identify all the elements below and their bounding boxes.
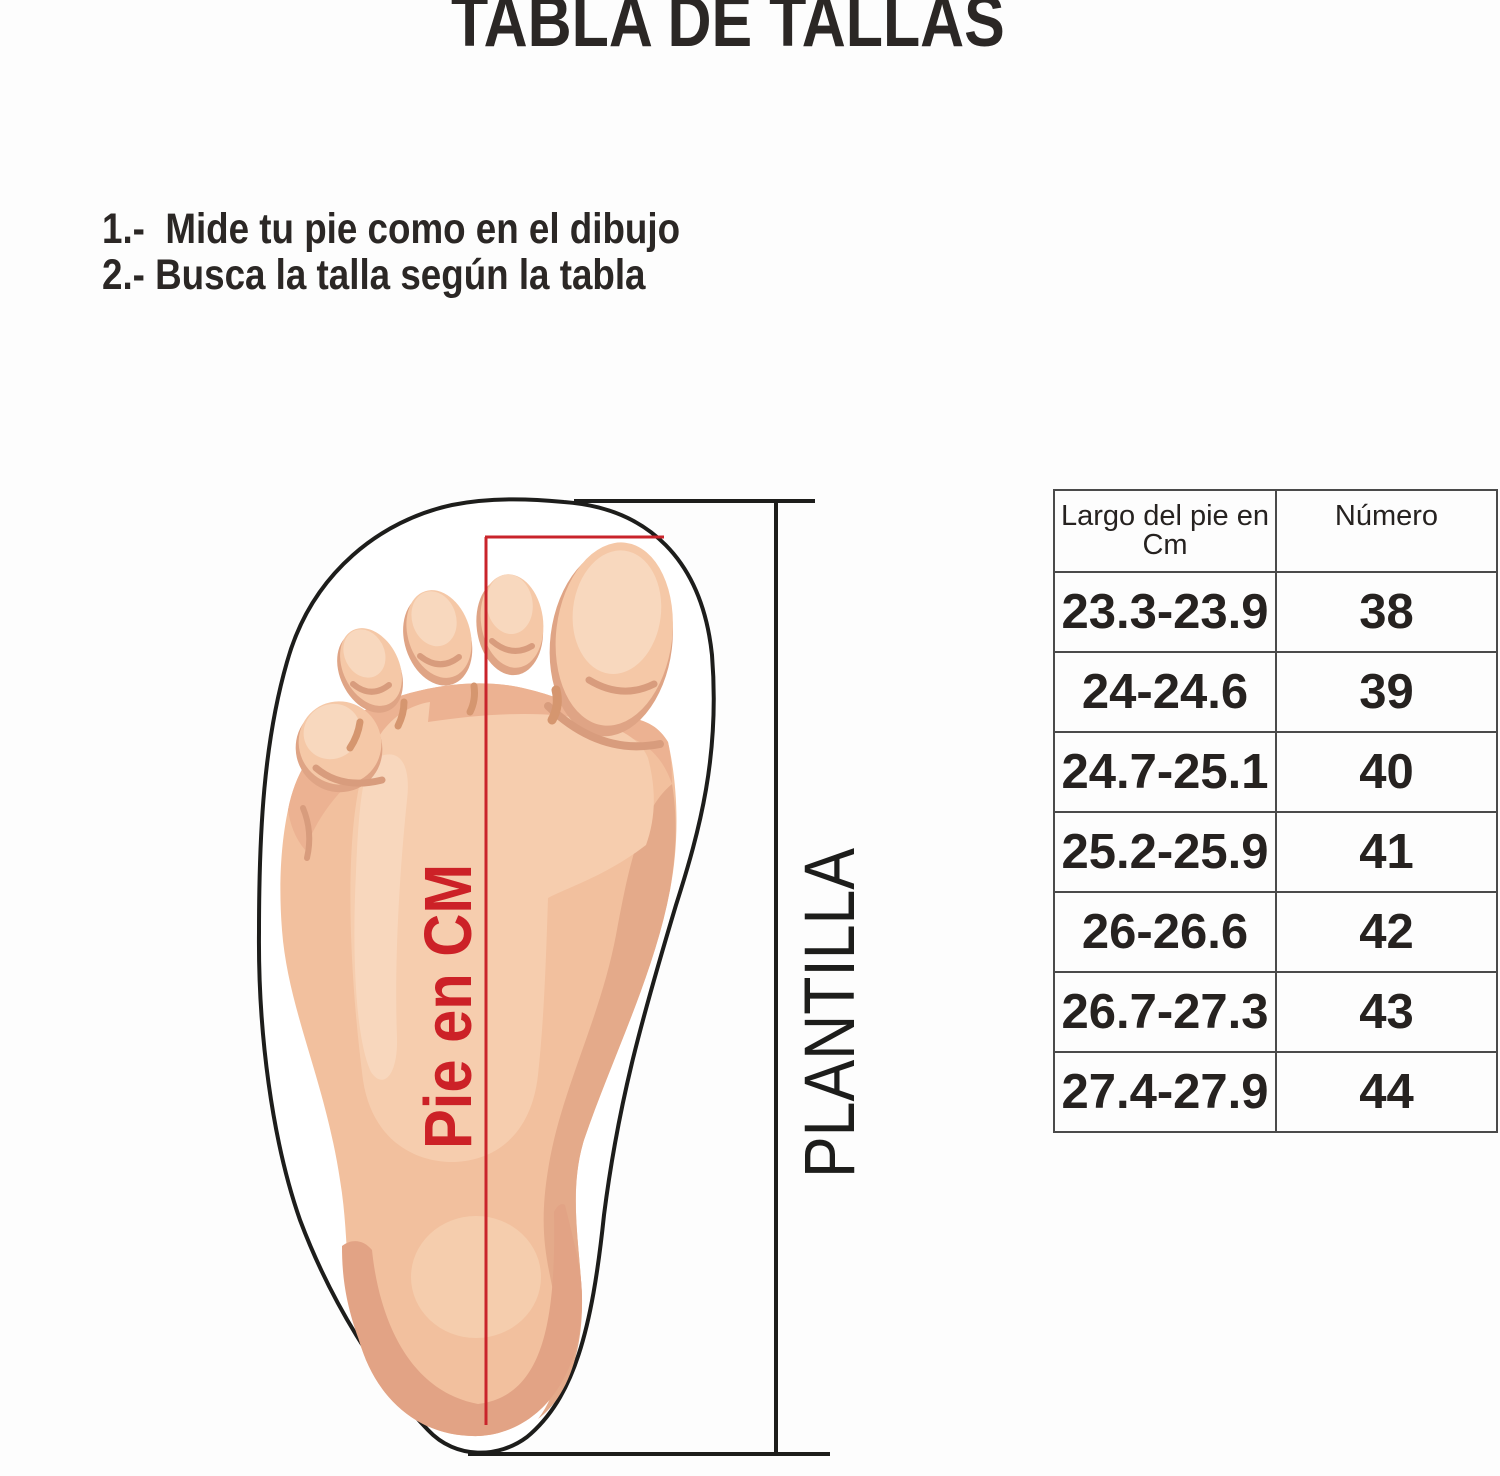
svg-text:Pie en CM: Pie en CM [411,864,486,1149]
svg-text:PLANTILLA: PLANTILLA [791,847,870,1178]
